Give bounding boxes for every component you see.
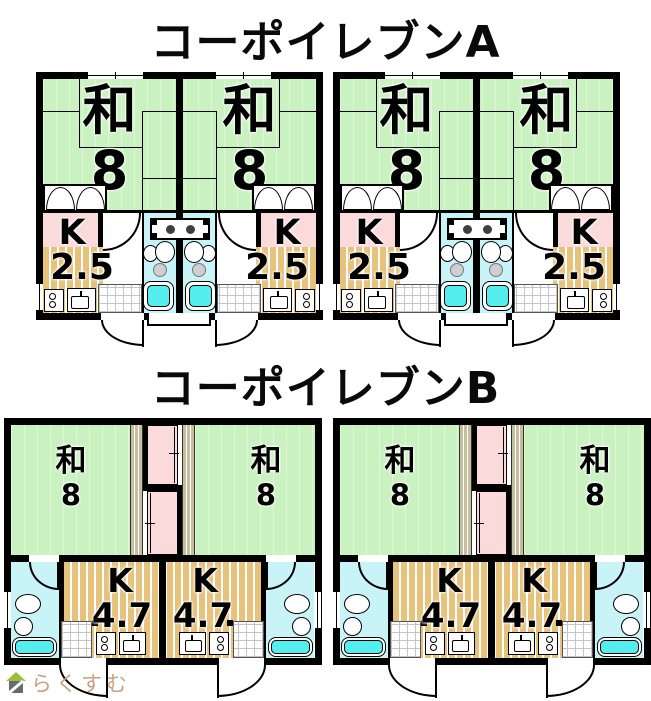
entrance-opening — [512, 313, 555, 320]
genkan-tile — [395, 284, 439, 313]
washer-drain-icon — [483, 225, 492, 234]
stove-burner — [430, 644, 437, 651]
washer-drain-icon — [186, 225, 195, 234]
window — [36, 284, 43, 310]
bath-door-leaf — [386, 562, 388, 590]
stove-burner — [217, 644, 224, 651]
stove-burner — [303, 293, 310, 300]
corner-mark — [152, 220, 157, 225]
entrance-opening — [219, 658, 264, 665]
bathtub-water — [444, 285, 467, 307]
stove-icon — [592, 289, 612, 312]
window-line — [646, 592, 647, 628]
porch-step — [444, 313, 508, 326]
washer-drain-icon — [463, 225, 472, 234]
stove-burner — [217, 636, 224, 643]
washing-machine-area — [150, 218, 210, 240]
window-tick — [243, 72, 244, 79]
sliding-door-tick — [145, 523, 155, 524]
stove-burner — [346, 293, 353, 300]
watermark: らくすむ — [6, 668, 131, 698]
window — [88, 72, 143, 79]
kitchen-size-label: 4.7 — [406, 599, 496, 635]
corner-mark — [449, 220, 454, 225]
party-wall — [473, 79, 480, 313]
bathtub-icon — [12, 637, 57, 657]
sink-icon — [364, 288, 393, 312]
sliding-door-tick — [474, 523, 484, 524]
room-type-label: 和 — [43, 83, 176, 140]
sink-tap — [574, 291, 576, 297]
stove-burner — [430, 636, 437, 643]
closet-door-arc — [373, 187, 402, 210]
window — [4, 592, 11, 628]
hall-strip — [182, 425, 195, 555]
window-line — [7, 592, 8, 628]
sink-icon — [263, 288, 292, 312]
closet-door-arc — [76, 187, 105, 210]
wash-basin-icon — [621, 617, 640, 636]
toilet-icon — [15, 594, 41, 614]
closet-door-arc — [46, 187, 75, 210]
entrance-door-leaf — [546, 665, 548, 698]
bath-door-leaf — [57, 562, 59, 590]
kitchen-size-label: 2.5 — [531, 249, 617, 287]
stove-burner — [600, 293, 607, 300]
bath-door-opening — [595, 555, 625, 562]
corner-mark — [500, 220, 505, 225]
corner-mark — [203, 233, 208, 238]
bath-door-arc — [400, 213, 438, 251]
room-size-label: 8 — [25, 480, 117, 510]
kitchen-size-label: 4.7 — [77, 599, 167, 635]
sink-basin — [185, 640, 202, 652]
kitchen-label: K — [80, 564, 160, 599]
house-logo-icon — [6, 672, 26, 694]
wash-basin-icon — [14, 617, 33, 636]
apartment-unit-b: K 4.7 — [495, 562, 643, 658]
genkan-tile — [514, 284, 558, 313]
bath-door-arc — [218, 213, 256, 251]
sink-basin — [123, 640, 140, 652]
bathtub-water — [189, 285, 212, 307]
entrance-opening — [61, 658, 106, 665]
stove-burner — [600, 301, 607, 308]
closet — [252, 184, 316, 212]
room-type-label: 和 — [220, 445, 312, 478]
bathtub-icon — [143, 281, 174, 311]
toilet-icon — [613, 594, 639, 614]
closet — [43, 184, 107, 212]
closet — [340, 184, 404, 212]
bath-door-opening — [358, 555, 388, 562]
sliding-door-tick — [498, 453, 508, 454]
stove-icon — [295, 289, 315, 312]
party-wall — [176, 79, 183, 313]
stove-burner — [101, 644, 108, 651]
entrance-door-arc — [217, 665, 266, 697]
sink-basin — [71, 296, 89, 309]
bathtub-water — [147, 285, 170, 307]
sink-basin — [514, 640, 531, 652]
closet-door-arc — [343, 187, 372, 210]
bathtub-water — [271, 640, 310, 654]
entrance-opening — [398, 313, 441, 320]
room-size-label: 8 — [220, 480, 312, 510]
washer-drain-icon — [166, 225, 175, 234]
window — [333, 284, 340, 310]
bathtub-icon — [597, 637, 642, 657]
closet — [549, 184, 613, 212]
stove-burner — [49, 301, 56, 308]
entrance-opening — [101, 313, 144, 320]
window-line — [39, 284, 40, 310]
window — [333, 592, 340, 628]
window-line — [319, 284, 320, 310]
apartment-unit-a: 和 8 K 2.5 — [183, 79, 316, 313]
porch-step — [147, 313, 211, 326]
corner-mark — [152, 233, 157, 238]
corner-mark — [203, 220, 208, 225]
window — [643, 592, 650, 628]
entrance-opening — [215, 313, 258, 320]
closet-door-arc — [581, 187, 610, 210]
bathtub-icon — [341, 637, 386, 657]
room-type-label: 和 — [340, 83, 473, 140]
stove-burner — [546, 644, 553, 651]
kitchen-label: K — [494, 564, 574, 599]
toilet-icon — [481, 241, 501, 263]
washing-machine-area — [447, 218, 507, 240]
sink-basin — [270, 296, 288, 309]
room-type-label: 和 — [25, 445, 117, 478]
room-size-label: 8 — [354, 480, 446, 510]
building-b-title: コーポイレブンB — [0, 352, 651, 416]
floorplan-canvas: コーポイレブンA 和 8 K 2.5 — [0, 0, 651, 701]
toilet-seat-icon — [450, 263, 464, 277]
room-type-label: 和 — [549, 445, 641, 478]
toilet-icon — [155, 241, 175, 263]
toilet-seat-icon — [489, 263, 503, 277]
room-type-label: 和 — [354, 445, 446, 478]
closet-door-arc — [551, 187, 580, 210]
apartment-unit-b: K 4.7 — [11, 562, 159, 658]
building-b-block: 和 8 和 8 — [4, 418, 322, 665]
building-a-title: コーポイレブンA — [0, 6, 651, 70]
bath-door-arc — [103, 213, 141, 251]
kitchen-size-label: 4.7 — [158, 599, 248, 635]
watermark-brand: らくすむ — [31, 668, 131, 698]
closet-door-arc — [254, 187, 283, 210]
entrance-door-arc — [512, 320, 555, 346]
bath-door-opening — [266, 555, 296, 562]
sliding-door-tick — [169, 453, 179, 454]
bath-door-leaf — [266, 562, 268, 590]
apartment-unit-a: 和 8 K 2.5 — [480, 79, 613, 313]
stove-icon — [44, 289, 64, 312]
window — [216, 72, 271, 79]
sink-basin — [567, 296, 585, 309]
apartment-unit-a: 和 8 K 2.5 — [43, 79, 176, 313]
sink-tap — [80, 291, 82, 297]
entrance-door-arc — [388, 665, 437, 697]
window-line — [317, 592, 318, 628]
bathtub-water — [15, 640, 54, 654]
sliding-door-line — [174, 427, 175, 483]
apartment-unit-a: 和 8 K 2.5 — [340, 79, 473, 313]
toilet-icon — [452, 241, 472, 263]
toilet-icon — [344, 594, 370, 614]
entrance-door-arc — [398, 320, 441, 346]
bathtub-water — [486, 285, 509, 307]
apartment-unit-b: K 4.7 — [340, 562, 488, 658]
corner-mark — [500, 233, 505, 238]
party-wall — [159, 562, 166, 658]
room-type-label: 和 — [480, 83, 613, 140]
sink-tap — [377, 291, 379, 297]
building-b-block: 和 8 和 8 — [333, 418, 651, 665]
kitchen-label: K — [165, 564, 245, 599]
bathtub-water — [344, 640, 383, 654]
sink-tap — [277, 291, 279, 297]
bathtub-water — [600, 640, 639, 654]
entrance-door-arc — [215, 320, 258, 346]
stove-burner — [346, 301, 353, 308]
apartment-unit-b: K 4.7 — [166, 562, 314, 658]
entrance-door-leaf — [512, 320, 514, 347]
entrance-door-leaf — [215, 320, 217, 347]
entrance-door-leaf — [439, 320, 441, 347]
building-a-block: 和 8 K 2.5 — [36, 72, 323, 320]
corner-mark — [449, 233, 454, 238]
window — [385, 72, 440, 79]
genkan-tile — [98, 284, 142, 313]
bathtub-icon — [440, 281, 471, 311]
entrance-door-leaf — [217, 665, 219, 698]
closet-door-arc — [284, 187, 313, 210]
window-tick — [412, 72, 413, 79]
party-wall — [488, 562, 495, 658]
bathtub-icon — [482, 281, 513, 311]
kitchen-size-label: 4.7 — [487, 599, 577, 635]
sink-icon — [67, 288, 96, 312]
window — [316, 284, 323, 310]
entrance-door-arc — [546, 665, 595, 697]
sink-basin — [368, 296, 386, 309]
window-tick — [115, 72, 116, 79]
sliding-door-line — [503, 427, 504, 483]
stove-burner — [303, 301, 310, 308]
kitchen-label: K — [409, 564, 489, 599]
bathtub-icon — [185, 281, 216, 311]
sink-basin — [452, 640, 469, 652]
window-line — [336, 592, 337, 628]
stove-icon — [341, 289, 361, 312]
window-line — [336, 284, 337, 310]
toilet-seat-icon — [192, 263, 206, 277]
hall-strip — [459, 425, 472, 555]
window-tick — [540, 72, 541, 79]
wash-basin-icon — [343, 617, 362, 636]
entrance-opening — [390, 658, 435, 665]
bath-door-opening — [29, 555, 59, 562]
toilet-icon — [184, 241, 204, 263]
room-type-label: 和 — [183, 83, 316, 140]
room-size-label: 8 — [549, 480, 641, 510]
wash-basin-icon — [292, 617, 311, 636]
entrance-door-leaf — [435, 665, 437, 698]
entrance-door-arc — [101, 320, 144, 346]
entrance-door-leaf — [142, 320, 144, 347]
bath-door-arc — [515, 213, 553, 251]
hall-strip — [130, 425, 143, 555]
stove-burner — [49, 293, 56, 300]
window — [513, 72, 568, 79]
sink-icon — [560, 288, 589, 312]
stove-burner — [101, 636, 108, 643]
kitchen-size-label: 2.5 — [336, 249, 422, 287]
hall-strip — [511, 425, 524, 555]
genkan-tile — [217, 284, 261, 313]
window — [314, 592, 321, 628]
toilet-seat-icon — [153, 263, 167, 277]
bathtub-icon — [268, 637, 313, 657]
bath-door-leaf — [595, 562, 597, 590]
building-a-block: 和 8 K 2.5 — [333, 72, 620, 320]
kitchen-size-label: 2.5 — [234, 249, 320, 287]
window-line — [616, 284, 617, 310]
window — [613, 284, 620, 310]
entrance-opening — [548, 658, 593, 665]
kitchen-size-label: 2.5 — [39, 249, 125, 287]
stove-burner — [546, 636, 553, 643]
toilet-icon — [284, 594, 310, 614]
